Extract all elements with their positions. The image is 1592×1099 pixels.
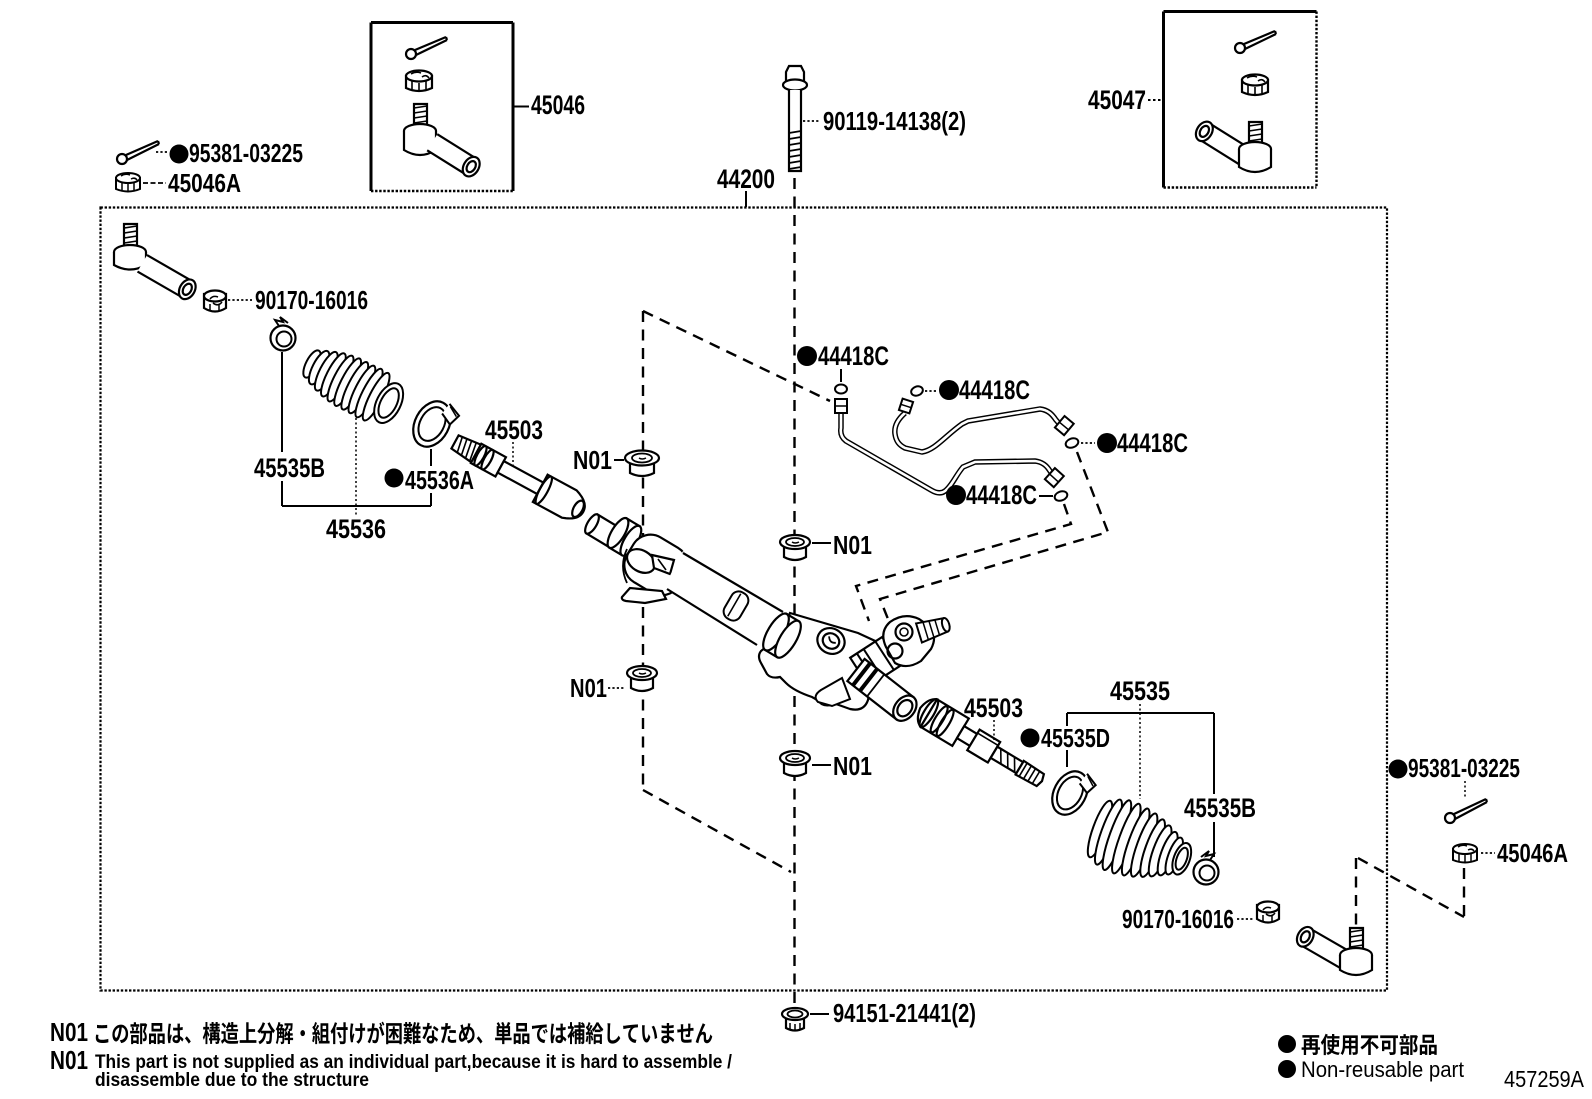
svg-text:N01: N01 bbox=[50, 1045, 88, 1075]
svg-text:45047: 45047 bbox=[1088, 85, 1146, 115]
svg-text:N01: N01 bbox=[573, 445, 612, 475]
svg-text:44418C: 44418C bbox=[966, 480, 1037, 510]
svg-text:disassemble due to the structu: disassemble due to the structure bbox=[95, 1070, 369, 1091]
svg-text:N01: N01 bbox=[833, 530, 872, 560]
svg-text:45503: 45503 bbox=[964, 693, 1023, 723]
svg-text:45535D: 45535D bbox=[1041, 723, 1110, 753]
svg-text:Non-reusable part: Non-reusable part bbox=[1301, 1057, 1464, 1082]
svg-text:44418C: 44418C bbox=[818, 341, 889, 371]
svg-text:45503: 45503 bbox=[485, 415, 543, 445]
svg-text:45536A: 45536A bbox=[405, 465, 474, 495]
svg-text:45535B: 45535B bbox=[1184, 793, 1256, 823]
svg-text:45046A: 45046A bbox=[168, 168, 241, 198]
svg-text:94151-21441(2): 94151-21441(2) bbox=[833, 998, 976, 1028]
svg-text:95381-03225: 95381-03225 bbox=[1408, 753, 1520, 783]
svg-text:45046: 45046 bbox=[531, 90, 585, 120]
svg-text:45536: 45536 bbox=[326, 514, 386, 544]
svg-text:90170-16016: 90170-16016 bbox=[255, 285, 368, 315]
svg-text:45535B: 45535B bbox=[254, 453, 325, 483]
svg-text:44200: 44200 bbox=[717, 164, 775, 194]
svg-text:N01: N01 bbox=[570, 673, 607, 703]
svg-text:90119-14138(2): 90119-14138(2) bbox=[823, 106, 966, 136]
svg-text:457259A: 457259A bbox=[1504, 1066, 1585, 1092]
svg-text:44418C: 44418C bbox=[1117, 428, 1188, 458]
svg-text:45535: 45535 bbox=[1110, 676, 1170, 706]
svg-text:90170-16016: 90170-16016 bbox=[1122, 904, 1234, 934]
svg-text:N01: N01 bbox=[50, 1017, 88, 1047]
svg-text:45046A: 45046A bbox=[1497, 838, 1568, 868]
svg-text:44418C: 44418C bbox=[959, 375, 1030, 405]
svg-text:N01: N01 bbox=[833, 751, 872, 781]
svg-text:95381-03225: 95381-03225 bbox=[189, 138, 303, 168]
